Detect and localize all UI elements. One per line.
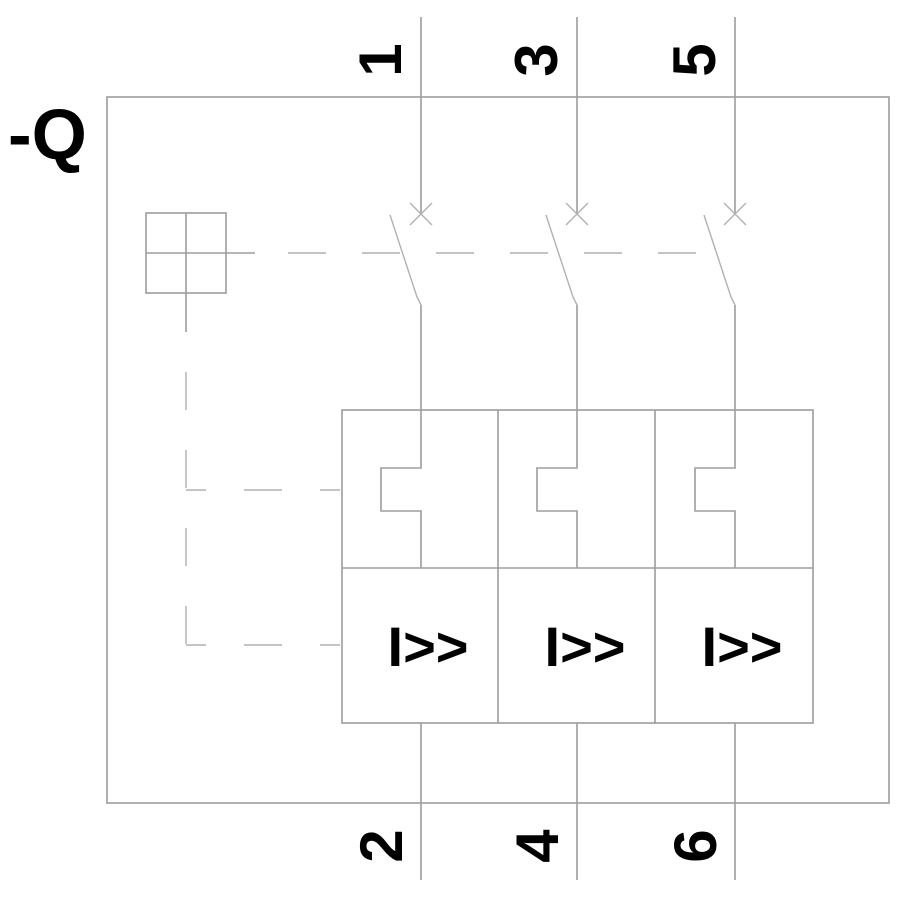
pole-1-contact-blade [390,215,421,305]
pole-1-thermal-release-path [381,305,421,568]
pole-3-contact-blade [704,215,735,305]
actuator-cross [146,213,255,332]
terminal-label-1: 1 [347,43,414,76]
terminal-label-3: 3 [503,43,570,76]
magnetic-release-label-3: I>> [702,615,783,678]
device-designation-label: -Q [8,96,87,175]
terminal-label-4: 4 [504,829,571,863]
terminal-label-2: 2 [348,829,415,862]
solid-lines [107,17,889,880]
terminal-label-6: 6 [662,829,729,862]
pole-2-contact-blade [546,215,577,305]
magnetic-release-label-2: I>> [545,615,626,678]
magnetic-release-label-1: I>> [388,615,469,678]
pole-3-thermal-release-path [695,305,735,568]
light-lines [186,203,746,645]
terminal-label-5: 5 [661,43,728,76]
circuit-diagram: -Q 1 3 5 2 4 6 I>> I>> I>> [0,0,900,900]
labels: -Q 1 3 5 2 4 6 I>> I>> I>> [8,43,782,862]
pole-2-thermal-release-path [537,305,577,568]
